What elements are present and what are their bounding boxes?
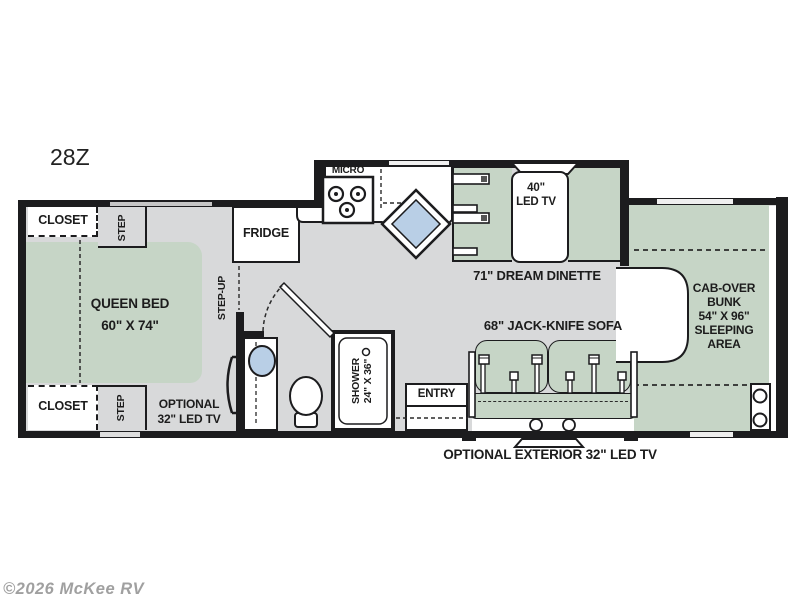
bunk-label-line5: AREA (674, 337, 774, 351)
closet-bottom-label: CLOSET (28, 400, 98, 414)
shower-label-line2: 24" X 36" (362, 358, 374, 404)
fridge-label: FRIDGE (232, 227, 300, 241)
queen-bed-label-line2: 60" X 74" (50, 315, 210, 337)
sofa-base-circle (563, 419, 575, 431)
watermark: ©2026 McKee RV (3, 580, 144, 599)
queen-bed-label-line1: QUEEN BED (50, 293, 210, 315)
optional-tv-label: OPTIONAL 32" LED TV (150, 397, 228, 426)
seat-belt-icons-tall (479, 355, 599, 393)
step-top-label: STEP (101, 206, 145, 250)
bunk-label-line4: SLEEPING (674, 323, 774, 337)
optional-tv-label-line1: OPTIONAL (150, 397, 228, 412)
shower-label-line1: SHOWER (350, 358, 362, 404)
dinette-tv-label-line2: LED TV (508, 195, 564, 209)
bathroom-door-leaf (280, 283, 334, 337)
step-bottom-label: STEP (100, 386, 144, 430)
sofa-label: 68" JACK-KNIFE SOFA (468, 319, 638, 333)
shower-label: SHOWER 24" X 36" (322, 341, 402, 421)
bunk-label-line1: CAB-OVER (674, 281, 774, 295)
bathroom-door-swing-arc (263, 286, 282, 331)
floorplan-canvas: 28Z (0, 0, 800, 600)
dinette-label: 71" DREAM DINETTE (447, 269, 627, 283)
bunk-label-line3: 54" X 96" (674, 309, 774, 323)
micro-label: MICRO (322, 166, 374, 177)
dinette-armrest-icons (453, 174, 489, 255)
bedroom-tv (228, 357, 237, 413)
toilet-icon (290, 377, 322, 415)
optional-tv-label-line2: 32" LED TV (150, 412, 228, 427)
bunk-label-line2: BUNK (674, 295, 774, 309)
closet-top-label: CLOSET (28, 214, 98, 228)
bunk-label: CAB-OVER BUNK 54" X 96" SLEEPING AREA (674, 281, 774, 351)
cab-step-circle (754, 390, 767, 403)
sofa-armrest-right (631, 352, 637, 417)
seat-belt-icons-short (510, 372, 626, 393)
exterior-tv-bracket (515, 439, 583, 447)
sofa-base-circle (530, 419, 542, 431)
dinette-tv-label-line1: 40" (508, 181, 564, 195)
step-up-label: STEP-UP (193, 268, 253, 328)
dinette-tv-label: 40" LED TV (508, 181, 564, 209)
entry-label: ENTRY (405, 388, 468, 400)
exterior-tv-label: OPTIONAL EXTERIOR 32" LED TV (425, 448, 675, 463)
bathroom-sink-icon (249, 346, 275, 376)
sofa-armrest-left (469, 352, 475, 417)
cab-step-circle (754, 414, 767, 427)
queen-bed-label: QUEEN BED 60" X 74" (50, 293, 210, 337)
